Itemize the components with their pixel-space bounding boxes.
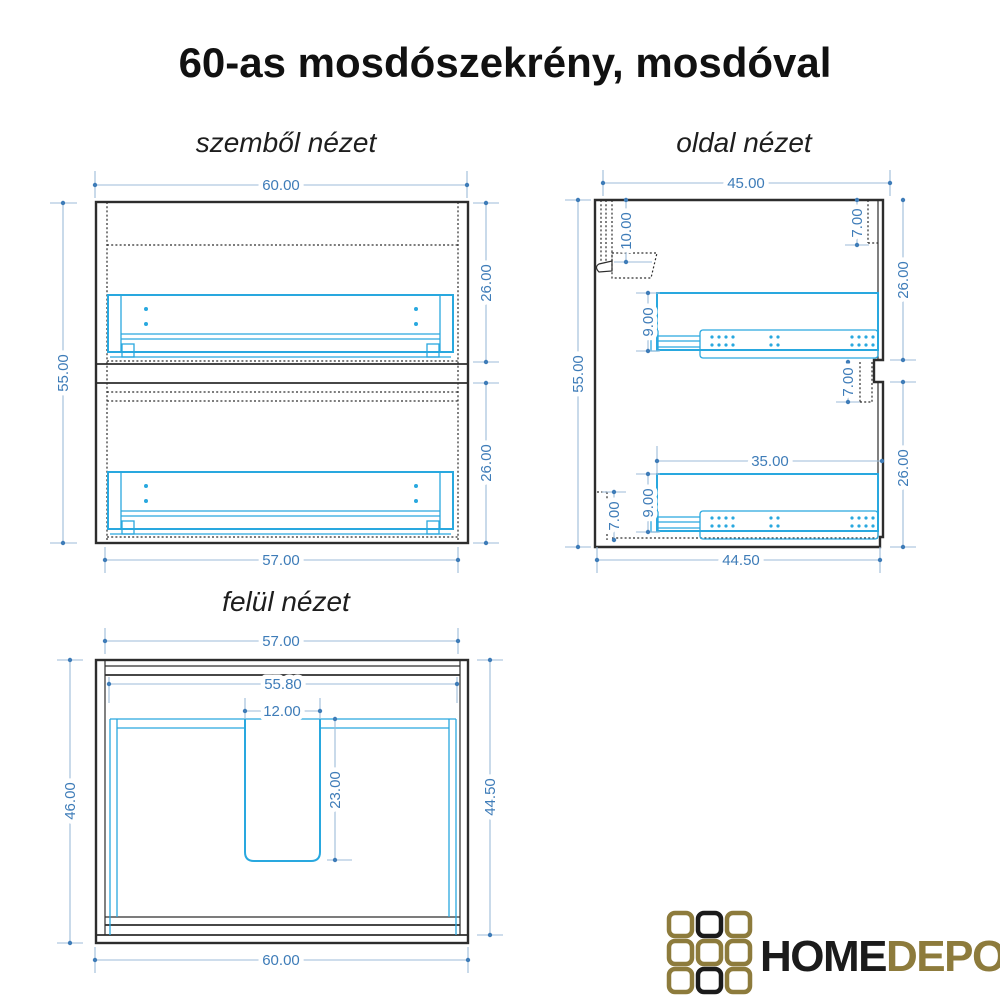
side-upper-drawer	[651, 293, 878, 358]
svg-text:9.00: 9.00	[640, 307, 657, 336]
svg-text:44.50: 44.50	[482, 778, 499, 816]
svg-text:7.00: 7.00	[606, 501, 623, 530]
countertop-cyan-outline	[110, 719, 456, 935]
svg-text:35.00: 35.00	[751, 453, 789, 470]
logo-wordmark: HOMEDEPO	[760, 932, 1000, 981]
top-view-drawing: 57.00 55.80 12.00 23.00 46.00	[57, 628, 503, 973]
technical-drawing-page: 60-as mosdószekrény, mosdóval szemből né…	[0, 0, 1000, 1000]
side-lower-drawer	[651, 474, 878, 539]
svg-text:26.00: 26.00	[895, 449, 912, 487]
svg-text:26.00: 26.00	[478, 264, 495, 302]
side-dim-front-top: 7.00	[845, 198, 869, 247]
svg-text:60.00: 60.00	[262, 177, 300, 194]
top-dim-depth-left: 46.00	[57, 658, 83, 945]
wall-bracket-hook	[597, 261, 613, 272]
svg-text:60.00: 60.00	[262, 952, 300, 969]
logo-grid-icon	[669, 913, 750, 992]
front-dim-lower-drawer: 26.00	[473, 381, 499, 545]
side-dim-back-offset: 10.00	[614, 198, 652, 264]
basin-cutout	[245, 719, 320, 861]
logo-text-home: HOME	[760, 932, 886, 981]
logo-text-depo: DEPO	[886, 932, 1000, 981]
front-dim-width-top: 60.00	[93, 171, 469, 198]
front-view-label: szemből nézet	[196, 127, 378, 158]
front-dim-width-bottom: 57.00	[103, 547, 460, 573]
svg-text:55.80: 55.80	[264, 676, 302, 693]
top-dim-cutout-depth: 23.00	[327, 717, 352, 862]
homedepo-logo: HOMEDEPO	[669, 913, 1000, 992]
svg-text:57.00: 57.00	[262, 552, 300, 569]
svg-text:7.00: 7.00	[840, 367, 857, 396]
side-dim-rail-length: 35.00	[655, 446, 884, 474]
basin-hidden-outline	[612, 253, 657, 278]
front-dim-height: 55.00	[50, 201, 77, 545]
svg-text:23.00: 23.00	[327, 771, 344, 809]
svg-text:12.00: 12.00	[263, 703, 301, 720]
top-dim-width-bottom: 60.00	[93, 947, 470, 973]
svg-text:55.00: 55.00	[55, 354, 72, 392]
side-dim-depth-bottom: 44.50	[595, 547, 882, 573]
svg-text:57.00: 57.00	[262, 633, 300, 650]
top-view-label: felül nézet	[222, 586, 351, 617]
page-title: 60-as mosdószekrény, mosdóval	[179, 39, 832, 86]
side-view-label: oldal nézet	[676, 127, 813, 158]
front-view-drawing: 60.00 55.00 26.00 26.00 57.00	[50, 171, 499, 573]
svg-text:46.00: 46.00	[62, 782, 79, 820]
svg-text:44.50: 44.50	[722, 552, 760, 569]
front-lower-drawer	[108, 472, 453, 534]
side-dim-depth-top: 45.00	[601, 170, 892, 196]
top-dim-depth-right: 44.50	[477, 658, 503, 937]
svg-text:45.00: 45.00	[727, 175, 765, 192]
front-upper-drawer	[108, 295, 453, 357]
svg-text:55.00: 55.00	[570, 355, 587, 393]
side-dim-plinth: 7.00	[602, 490, 626, 542]
cabinet-drawing-svg: 60-as mosdószekrény, mosdóval szemből né…	[0, 0, 1000, 1000]
top-dim-cutout-width: 12.00	[243, 698, 322, 720]
svg-text:10.00: 10.00	[618, 212, 635, 250]
svg-text:26.00: 26.00	[895, 261, 912, 299]
side-dim-upper-section: 26.00	[890, 198, 916, 362]
svg-text:7.00: 7.00	[849, 208, 866, 237]
front-dim-upper-drawer: 26.00	[473, 201, 499, 364]
top-dim-inner-width: 55.80	[107, 676, 459, 703]
slide-rivets-upper	[710, 335, 874, 346]
top-dim-width-top: 57.00	[103, 628, 460, 654]
side-view-drawing: 45.00 55.00 10.00 7.00 26.00	[565, 170, 916, 573]
svg-text:9.00: 9.00	[640, 488, 657, 517]
side-dim-height: 55.00	[565, 198, 591, 549]
slide-rivets-lower	[710, 516, 874, 527]
svg-text:26.00: 26.00	[478, 444, 495, 482]
side-dim-front-mid: 7.00	[836, 360, 860, 404]
side-dim-lower-section: 26.00	[890, 380, 916, 549]
